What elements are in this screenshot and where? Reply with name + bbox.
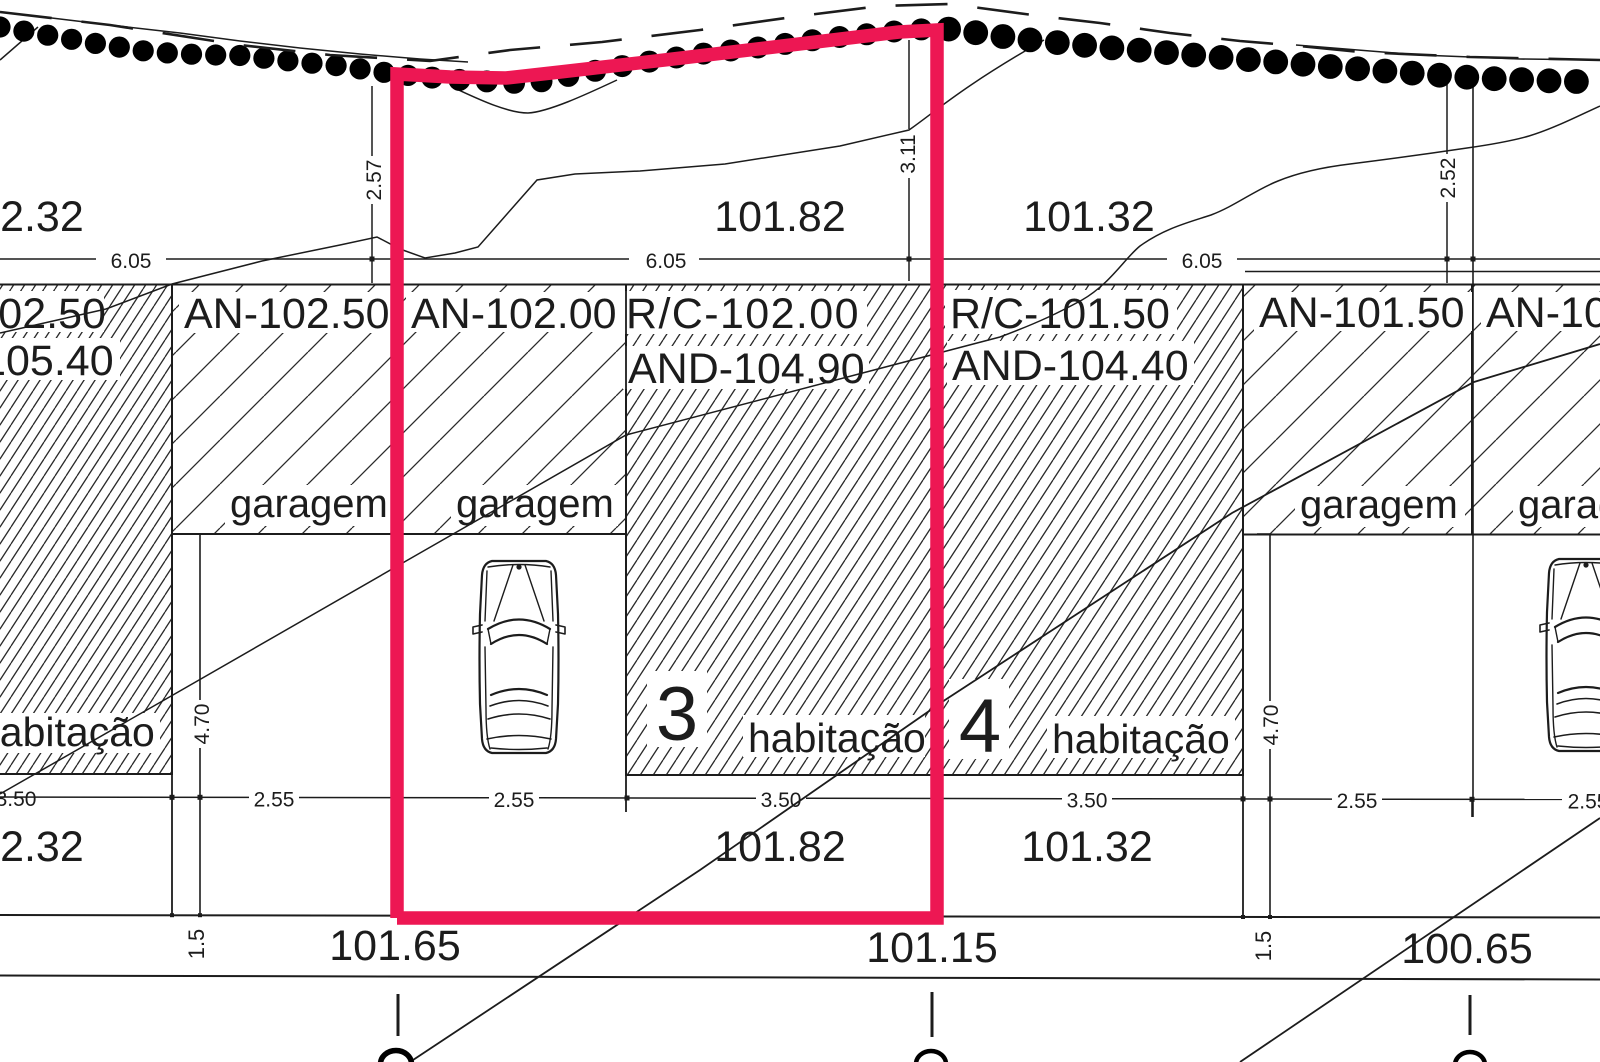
svg-text:habitação: habitação (1052, 716, 1230, 762)
svg-text:6.05: 6.05 (646, 250, 687, 273)
svg-text:6.05: 6.05 (111, 250, 152, 273)
svg-text:3.50: 3.50 (0, 788, 36, 811)
svg-text:2.55: 2.55 (1337, 790, 1378, 813)
svg-text:AN-101.50: AN-101.50 (1259, 289, 1465, 337)
svg-text:AND-104.90: AND-104.90 (628, 345, 865, 393)
svg-text:101.65: 101.65 (329, 922, 461, 970)
svg-text:garagem: garagem (456, 482, 614, 526)
svg-text:101.32: 101.32 (1021, 823, 1153, 871)
svg-text:1.5: 1.5 (1251, 931, 1276, 962)
svg-text:2.52: 2.52 (1437, 158, 1460, 199)
svg-text:AND-105.40: AND-105.40 (0, 337, 114, 385)
svg-text:AN-102.50: AN-102.50 (184, 290, 390, 338)
svg-text:garagem: garagem (1300, 483, 1458, 527)
svg-text:1.5: 1.5 (184, 929, 209, 960)
svg-text:101.82: 101.82 (714, 193, 846, 241)
svg-text:101.32: 101.32 (1023, 193, 1155, 241)
svg-text:R/C-102.50: R/C-102.50 (0, 290, 106, 338)
svg-text:101.15: 101.15 (866, 924, 998, 972)
svg-text:3: 3 (656, 672, 698, 757)
svg-text:4.70: 4.70 (1260, 705, 1283, 746)
svg-text:2.57: 2.57 (363, 160, 386, 201)
svg-text:101.82: 101.82 (714, 823, 846, 871)
svg-text:2.55: 2.55 (494, 789, 535, 812)
svg-text:102.32: 102.32 (0, 823, 84, 871)
svg-text:102.32: 102.32 (0, 193, 84, 241)
svg-text:100.65: 100.65 (1401, 925, 1533, 973)
svg-text:6.05: 6.05 (1182, 250, 1223, 273)
svg-text:R/C-102.00: R/C-102.00 (626, 290, 860, 338)
svg-text:3.50: 3.50 (761, 789, 802, 812)
svg-text:habitação: habitação (0, 709, 155, 755)
svg-text:R/C-101.50: R/C-101.50 (950, 290, 1170, 338)
svg-text:3.50: 3.50 (1067, 790, 1108, 813)
svg-text:AND-104.40: AND-104.40 (952, 342, 1189, 390)
svg-text:2.55: 2.55 (254, 788, 295, 811)
svg-text:habitação: habitação (748, 715, 926, 761)
svg-text:2.55: 2.55 (1568, 791, 1600, 814)
svg-text:AN-101.00: AN-101.00 (1486, 289, 1600, 337)
svg-text:AN-102.00: AN-102.00 (411, 290, 617, 338)
svg-text:garagem: garagem (230, 482, 388, 526)
svg-text:4.70: 4.70 (191, 704, 214, 745)
svg-text:garagem: garagem (1518, 483, 1600, 527)
svg-text:4: 4 (959, 684, 1001, 769)
svg-text:3.11: 3.11 (897, 134, 920, 173)
